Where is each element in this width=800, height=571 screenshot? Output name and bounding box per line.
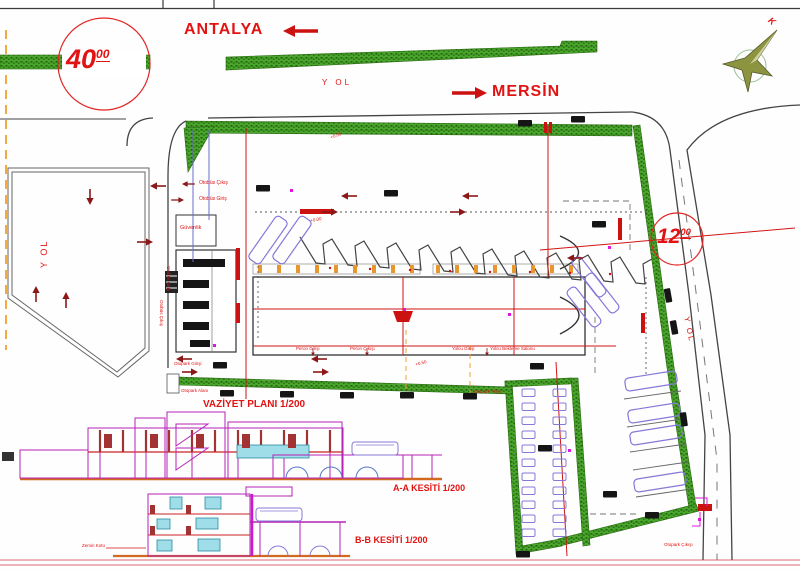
otopark-cikisi-label: Otopark Çıkışı	[664, 543, 693, 548]
magenta-points	[213, 189, 707, 526]
sheet-border-bottom	[0, 560, 800, 565]
hedge-strips	[0, 41, 699, 554]
otopark-girisi-label: Otopark Girişi	[174, 362, 202, 367]
section-aa-drawing	[2, 412, 442, 479]
antalya-arrow-icon	[283, 25, 318, 37]
site-plan-sheet: ANTALYA MERSİN Y OL Y OL Y OL 4000 1200 …	[0, 0, 800, 571]
neighbour-parcel-outline	[8, 168, 149, 377]
otopark-alani-right-label: Otopark Alanı	[474, 390, 501, 395]
gate-label-4: Yolcu Bekleme Salonu	[490, 347, 535, 352]
title-kesit-aa: A-A KESİTİ 1/200	[393, 484, 465, 493]
title-kesit-bb: B-B KESİTİ 1/200	[355, 536, 428, 545]
parked-cars	[522, 389, 566, 537]
zemin-kotu-label: Zemin Kotu	[82, 544, 105, 549]
road-label-mersin: MERSİN	[492, 84, 560, 100]
road-width-40: 4000	[66, 46, 110, 73]
otopark-alani-left-label: Otopark Alanı	[181, 389, 208, 394]
road-label-antalya: ANTALYA	[184, 22, 263, 38]
guvenlik-label: Güvenlik	[180, 226, 201, 232]
road-label-yol-left: Y OL	[40, 240, 49, 268]
north-compass-icon	[723, 30, 777, 92]
terminal-building	[253, 236, 652, 355]
section-bb-drawing	[113, 487, 350, 556]
title-vaziyet-plani: VAZİYET PLANI 1/200	[203, 400, 305, 410]
otobus-giris-vertical-label: Otobüs Giriş	[166, 266, 171, 291]
road-label-yol-top: Y OL	[322, 79, 352, 87]
gate-label-3: Yolcu Girişi	[452, 347, 474, 352]
gate-label-2: Peron Çıkışı	[350, 347, 375, 352]
otobus-giris-label: Otobüs Giriş	[199, 197, 227, 202]
sheet-frame	[0, 0, 800, 9]
otobus-cikis-vertical-label: Otobüs Çıkış	[159, 300, 164, 326]
otobus-cikis-label: Otobüs Çıkış	[199, 181, 228, 186]
security-depot-block	[165, 215, 236, 352]
gate-label-1: Peron Girişi	[296, 347, 320, 352]
road-width-12: 1200	[657, 226, 691, 247]
mersin-arrow-icon	[452, 87, 487, 99]
hedge-end-box	[167, 374, 179, 393]
